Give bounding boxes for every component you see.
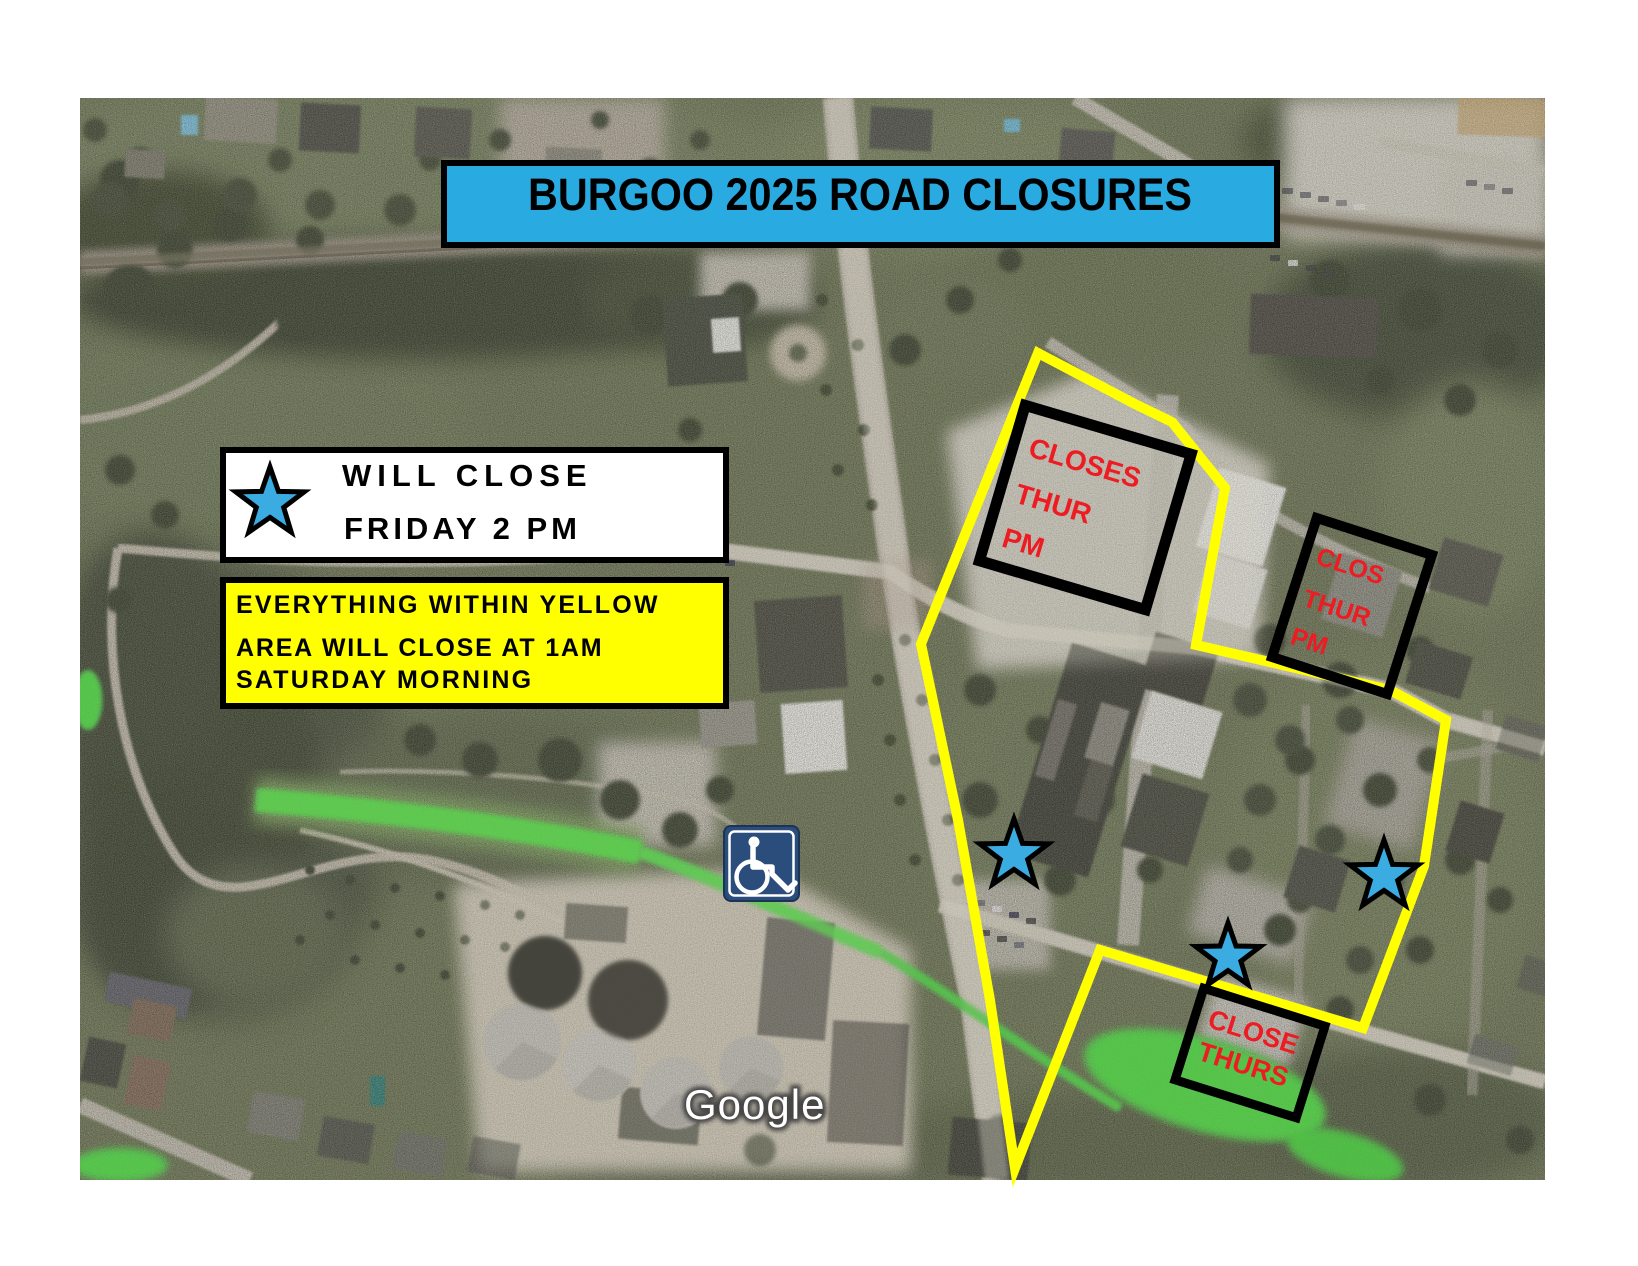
svg-text:Google: Google <box>684 1081 825 1128</box>
svg-text:FRIDAY 2 PM: FRIDAY 2 PM <box>344 511 581 546</box>
svg-text:EVERYTHING WITHIN YELLOW: EVERYTHING WITHIN YELLOW <box>236 591 660 619</box>
svg-text:AREA WILL CLOSE AT 1AM: AREA WILL CLOSE AT 1AM <box>236 634 603 662</box>
svg-text:SATURDAY MORNING: SATURDAY MORNING <box>236 666 533 694</box>
svg-text:BURGOO 2025 ROAD CLOSURES: BURGOO 2025 ROAD CLOSURES <box>528 169 1192 220</box>
svg-text:WILL CLOSE: WILL CLOSE <box>342 458 593 493</box>
